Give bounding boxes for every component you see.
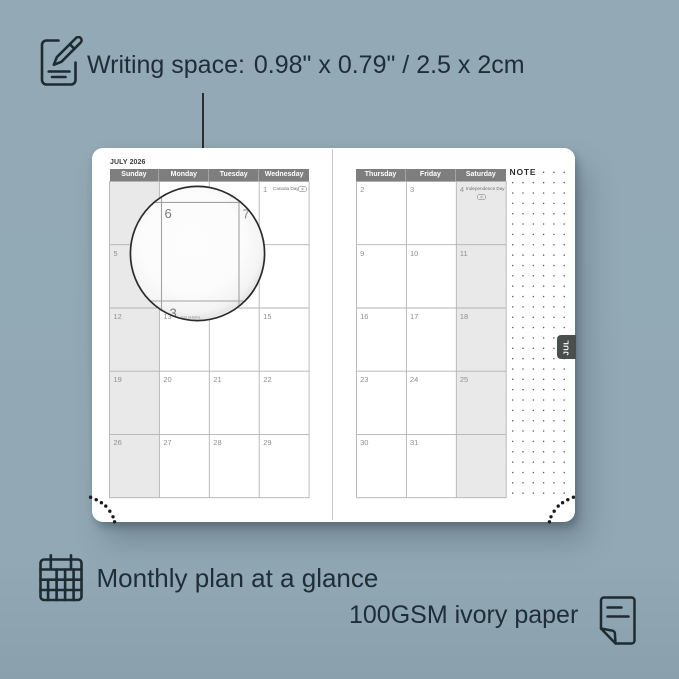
svg-text:6: 6	[165, 206, 172, 221]
svg-text:7: 7	[243, 207, 250, 222]
svg-text:3: 3	[170, 306, 177, 321]
